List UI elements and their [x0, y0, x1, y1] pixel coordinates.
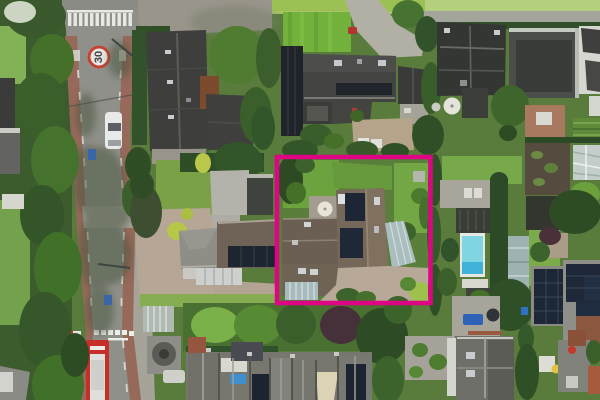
svg-text:30: 30 — [93, 51, 105, 63]
